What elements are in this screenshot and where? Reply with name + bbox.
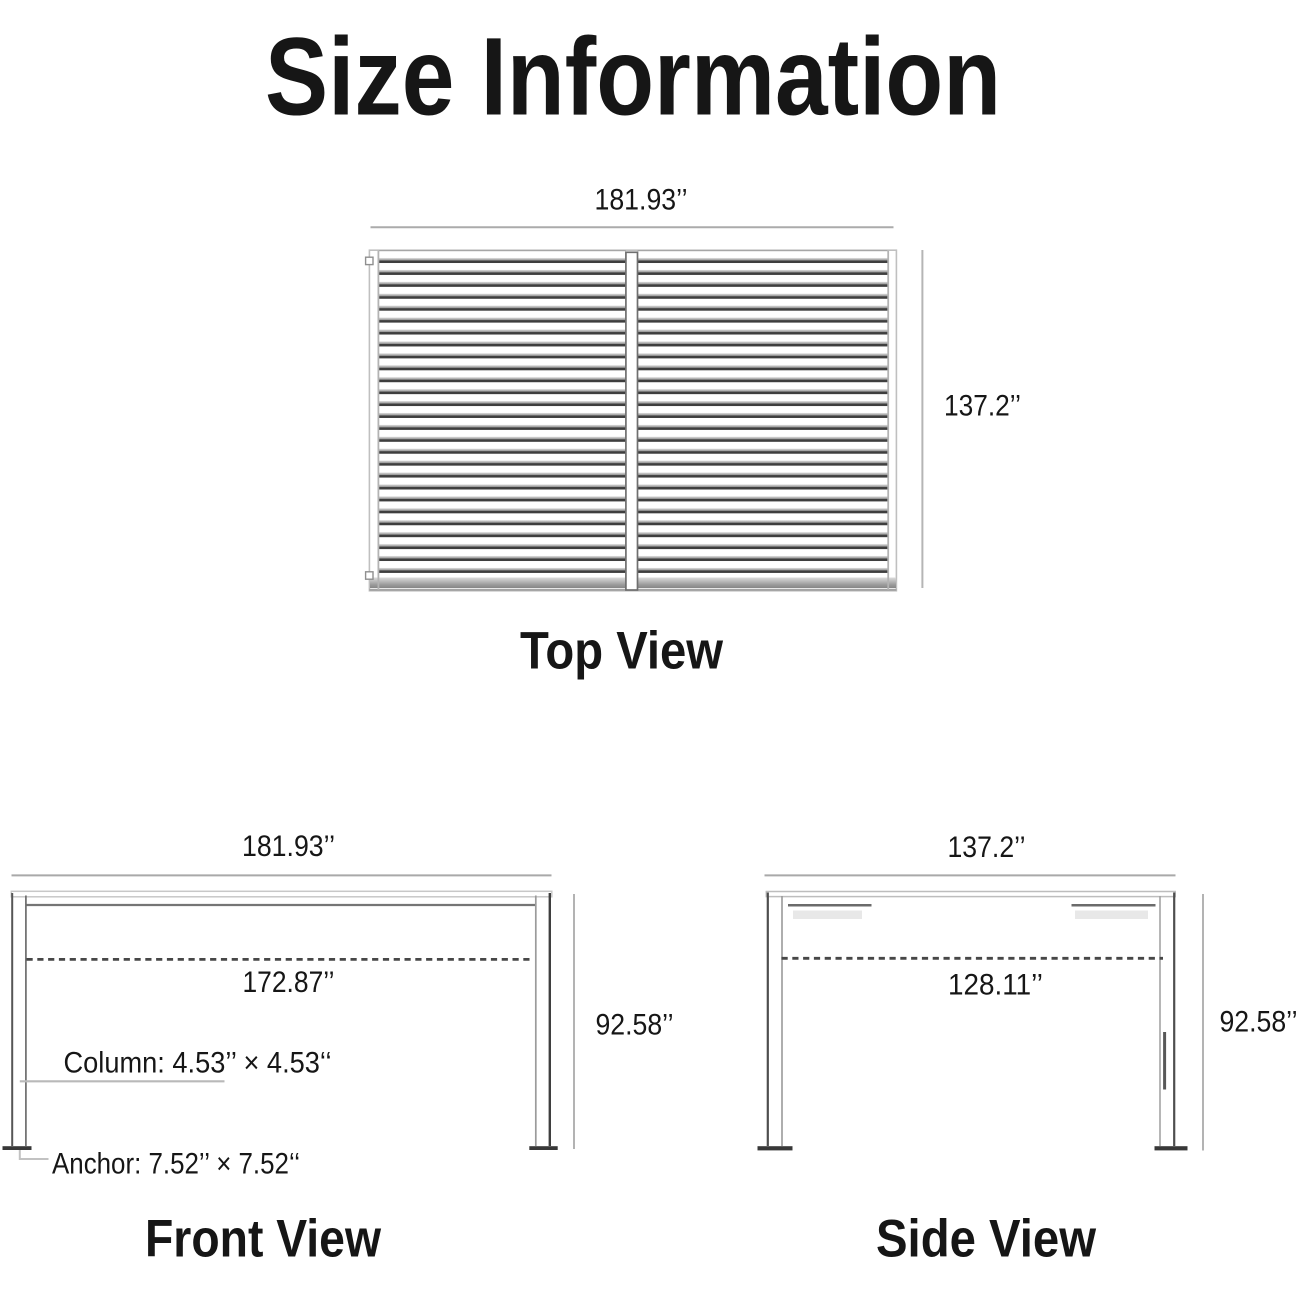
svg-text:Side View: Side View xyxy=(876,1210,1097,1269)
svg-text:181.93’’: 181.93’’ xyxy=(242,830,335,863)
svg-text:137.2’’: 137.2’’ xyxy=(944,390,1021,423)
svg-text:137.2’’: 137.2’’ xyxy=(948,831,1026,864)
svg-text:Size Information: Size Information xyxy=(265,16,1001,139)
svg-text:Front View: Front View xyxy=(145,1210,382,1269)
svg-text:Anchor: 7.52’’ × 7.52‘‘: Anchor: 7.52’’ × 7.52‘‘ xyxy=(52,1148,300,1181)
svg-text:92.58’’: 92.58’’ xyxy=(1220,1006,1298,1039)
svg-text:181.93’’: 181.93’’ xyxy=(595,184,688,217)
svg-text:Column: 4.53’’ × 4.53‘‘: Column: 4.53’’ × 4.53‘‘ xyxy=(64,1047,332,1080)
svg-text:Top View: Top View xyxy=(520,622,724,681)
svg-text:172.87’’: 172.87’’ xyxy=(243,966,335,999)
svg-text:128.11’’: 128.11’’ xyxy=(948,969,1043,1002)
svg-text:92.58’’: 92.58’’ xyxy=(596,1009,674,1042)
